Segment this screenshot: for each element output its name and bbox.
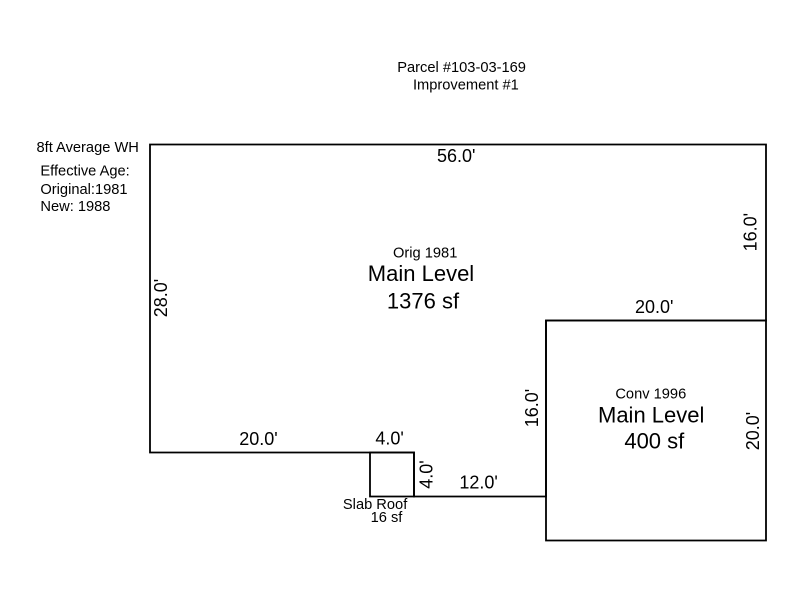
svg-text:4.0': 4.0' bbox=[375, 429, 403, 449]
svg-text:20.0': 20.0' bbox=[635, 297, 673, 317]
svg-text:28.0': 28.0' bbox=[151, 279, 171, 317]
svg-text:4.0': 4.0' bbox=[416, 460, 436, 488]
svg-text:1376 sf: 1376 sf bbox=[387, 289, 460, 314]
svg-text:New: 1988: New: 1988 bbox=[40, 199, 110, 215]
svg-text:20.0': 20.0' bbox=[239, 429, 277, 449]
svg-text:Original:1981: Original:1981 bbox=[40, 182, 127, 198]
svg-text:56.0': 56.0' bbox=[437, 146, 475, 166]
svg-text:16.0': 16.0' bbox=[740, 213, 760, 251]
svg-text:16 sf: 16 sf bbox=[371, 510, 404, 526]
svg-text:Orig 1981: Orig 1981 bbox=[393, 245, 457, 261]
svg-text:Main Level: Main Level bbox=[368, 261, 474, 286]
svg-text:Effective Age:: Effective Age: bbox=[40, 163, 129, 179]
svg-text:Improvement #1: Improvement #1 bbox=[413, 78, 519, 94]
svg-text:Conv 1996: Conv 1996 bbox=[615, 387, 686, 403]
svg-text:Main Level: Main Level bbox=[598, 402, 704, 427]
svg-text:8ft Average WH: 8ft Average WH bbox=[37, 140, 139, 156]
svg-text:16.0': 16.0' bbox=[522, 389, 542, 427]
svg-text:Parcel #103-03-169: Parcel #103-03-169 bbox=[397, 60, 526, 76]
svg-text:12.0': 12.0' bbox=[459, 473, 497, 493]
svg-text:20.0': 20.0' bbox=[743, 412, 763, 450]
svg-text:400 sf: 400 sf bbox=[624, 429, 685, 454]
